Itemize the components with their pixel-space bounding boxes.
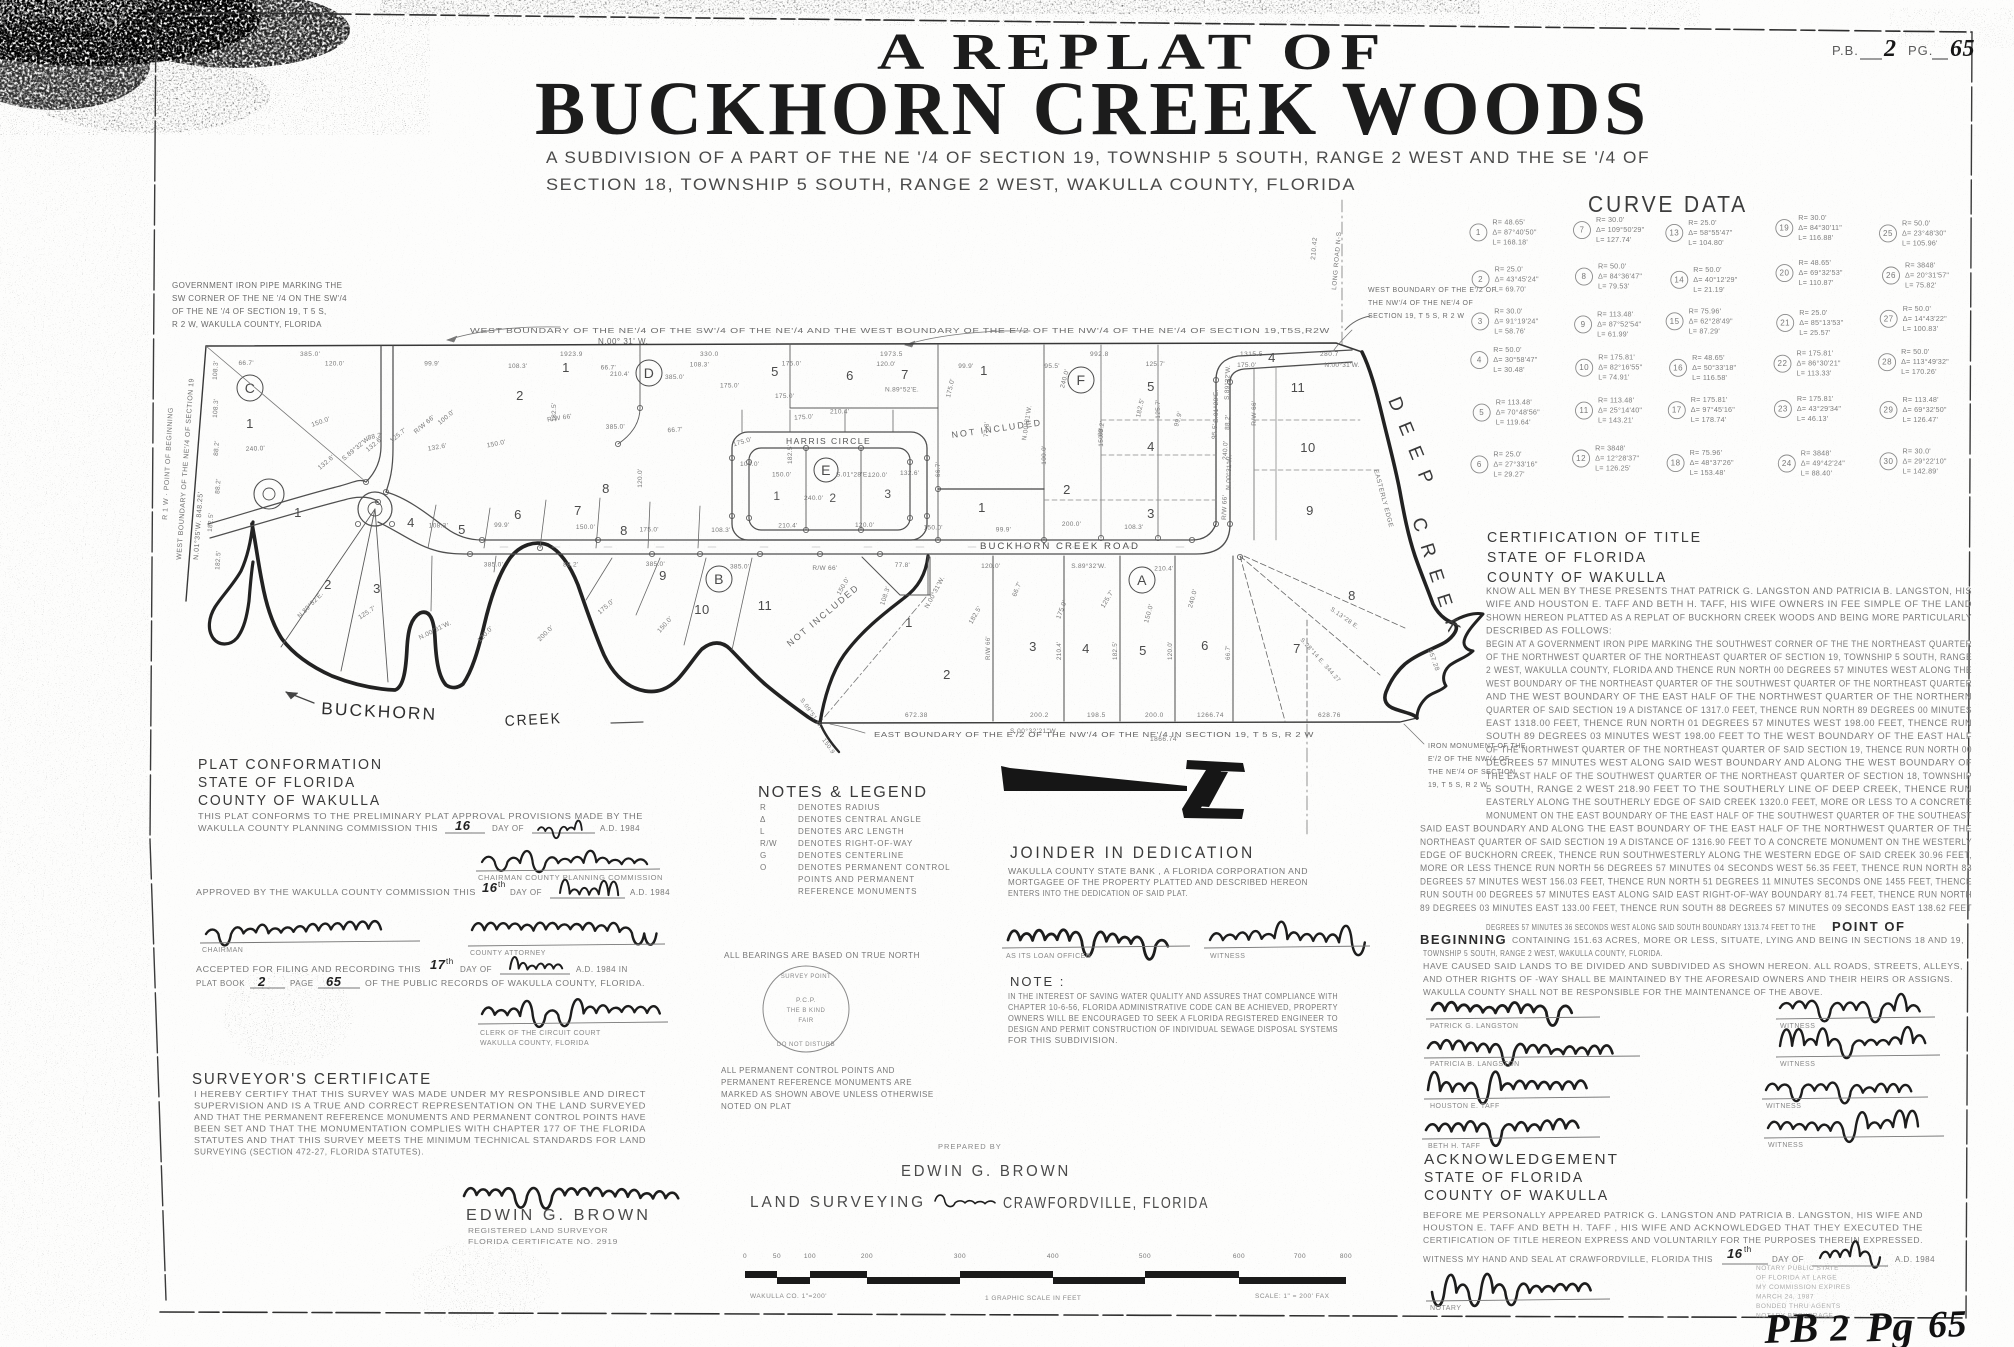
svg-text:7: 7 — [901, 367, 909, 382]
svg-text:99.9': 99.9' — [958, 363, 973, 370]
svg-text:Δ= 87°40'50": Δ= 87°40'50" — [1492, 227, 1536, 236]
svg-text:3: 3 — [884, 487, 891, 501]
svg-text:100.0': 100.0' — [740, 461, 759, 468]
svg-text:R= 48.65': R= 48.65' — [1492, 217, 1525, 226]
svg-text:CLERK OF THE CIRCUIT COURT: CLERK OF THE CIRCUIT COURT — [480, 1030, 601, 1037]
svg-text:DEGREES 57 MINUTES 36 SECONDS: DEGREES 57 MINUTES 36 SECONDS WEST ALONG… — [1486, 923, 1816, 932]
svg-text:88.2': 88.2' — [213, 440, 221, 456]
svg-text:15: 15 — [1670, 317, 1680, 326]
svg-text:88.2': 88.2' — [1224, 414, 1232, 430]
svg-text:16: 16 — [482, 880, 498, 895]
svg-text:L= 113.33': L= 113.33' — [1797, 369, 1832, 378]
svg-text:Δ= 43°45'24": Δ= 43°45'24" — [1495, 274, 1539, 283]
svg-text:0: 0 — [743, 1253, 747, 1260]
svg-text:1866.74': 1866.74' — [1150, 736, 1179, 743]
svg-text:R= 75.96': R= 75.96' — [1689, 306, 1722, 315]
svg-text:WIFE AND HOUSTON E. TAFF AND: WIFE AND HOUSTON E. TAFF AND BETH H. TAF… — [1486, 599, 1972, 609]
svg-text:P.B.: P.B. — [1832, 43, 1859, 58]
svg-text:THE EAST HALF OF THE SOUTHWES: THE EAST HALF OF THE SOUTHWEST QUARTER O… — [1486, 771, 1972, 781]
svg-text:66.7': 66.7' — [239, 360, 254, 367]
svg-text:DENOTES PERMANENT CONTROL: DENOTES PERMANENT CONTROL — [798, 863, 950, 872]
svg-text:R= 50.0': R= 50.0' — [1693, 265, 1722, 274]
svg-text:600: 600 — [1233, 1253, 1245, 1260]
svg-text:CREEK: CREEK — [504, 710, 562, 730]
svg-text:5: 5 — [1479, 408, 1484, 417]
svg-text:DENOTES CENTERLINE: DENOTES CENTERLINE — [798, 851, 904, 860]
svg-text:REFERENCE MONUMENTS: REFERENCE MONUMENTS — [798, 887, 917, 896]
svg-text:CHAPTER 10-6-56, FLORIDA ADMIN: CHAPTER 10-6-56, FLORIDA ADMINISTRATIVE … — [1008, 1003, 1338, 1012]
svg-text:CRAWFORDVILLE, FLORIDA: CRAWFORDVILLE, FLORIDA — [1003, 1195, 1209, 1212]
svg-text:182.5': 182.5' — [787, 445, 794, 464]
svg-text:3: 3 — [1147, 506, 1155, 521]
svg-text:108.3': 108.3' — [1124, 524, 1143, 531]
svg-text:A.D. 1984: A.D. 1984 — [600, 824, 640, 833]
svg-text:R= 25.0': R= 25.0' — [1799, 308, 1828, 317]
svg-text:500: 500 — [1139, 1253, 1151, 1260]
svg-text:R= 113.48': R= 113.48' — [1496, 398, 1533, 407]
svg-text:L= 168.18': L= 168.18' — [1492, 237, 1528, 246]
svg-text:175.0': 175.0' — [794, 413, 814, 421]
svg-text:150.0': 150.0' — [576, 524, 595, 531]
svg-text:1: 1 — [980, 363, 988, 378]
svg-text:HAVE CAUSED SAID LANDS TO BE D: HAVE CAUSED SAID LANDS TO BE DIVIDED AND… — [1423, 962, 1963, 971]
svg-text:240.0': 240.0' — [246, 445, 266, 453]
svg-text:L= 126.47': L= 126.47' — [1903, 415, 1939, 424]
svg-text:CHAIRMAN COUNTY PLANNING COMM: CHAIRMAN COUNTY PLANNING COMMISSION — [478, 875, 663, 882]
svg-text:18: 18 — [1671, 459, 1681, 468]
svg-text:PG.: PG. — [1908, 43, 1933, 58]
svg-text:992.8: 992.8 — [1090, 351, 1109, 358]
svg-text:CERTIFICATION OF TITLE HEREON: CERTIFICATION OF TITLE HEREON EXPRESS AN… — [1423, 1236, 1923, 1245]
svg-text:L= 46.13': L= 46.13' — [1797, 414, 1829, 423]
svg-text:R= 50.0': R= 50.0' — [1493, 345, 1522, 354]
svg-text:24: 24 — [1782, 459, 1792, 468]
svg-text:19: 19 — [1779, 224, 1789, 233]
svg-text:8: 8 — [602, 481, 610, 496]
svg-text:R/W 66': R/W 66' — [1221, 495, 1229, 520]
svg-text:5: 5 — [1147, 379, 1155, 394]
svg-text:L= 29.27': L= 29.27' — [1493, 469, 1525, 478]
svg-text:3: 3 — [1478, 317, 1483, 326]
svg-text:L= 69.70': L= 69.70' — [1495, 284, 1527, 293]
svg-text:WITNESS: WITNESS — [1766, 1103, 1801, 1110]
svg-text:672.38: 672.38 — [905, 712, 928, 719]
svg-text:Δ: Δ — [760, 815, 766, 824]
svg-text:16: 16 — [1673, 363, 1683, 372]
svg-text:66.7': 66.7' — [667, 426, 683, 434]
svg-text:THE NW'/4 OF THE NE'/4 OF: THE NW'/4 OF THE NE'/4 OF — [1368, 300, 1473, 307]
svg-text:EDWIN G. BROWN: EDWIN G. BROWN — [466, 1207, 651, 1224]
svg-text:175.0': 175.0' — [640, 526, 659, 533]
svg-text:R= 50.0': R= 50.0' — [1903, 304, 1932, 313]
svg-text:L= 25.57': L= 25.57' — [1799, 328, 1831, 337]
svg-text:10: 10 — [694, 602, 709, 617]
svg-text:L= 74.91': L= 74.91' — [1598, 373, 1630, 382]
svg-text:I HEREBY CERTIFY THAT THIS SUR: I HEREBY CERTIFY THAT THIS SURVEY WAS MA… — [194, 1090, 646, 1099]
svg-text:6: 6 — [1477, 460, 1482, 469]
svg-text:13: 13 — [1669, 228, 1679, 237]
svg-text:108.3': 108.3' — [508, 363, 527, 370]
svg-text:700: 700 — [1294, 1253, 1306, 1260]
svg-text:27: 27 — [1884, 314, 1894, 323]
svg-text:120.0': 120.0' — [325, 361, 344, 368]
svg-text:CURVE DATA: CURVE DATA — [1588, 191, 1748, 217]
svg-text:4: 4 — [1147, 439, 1155, 454]
svg-text:108.3': 108.3' — [711, 527, 730, 534]
svg-text:QUARTER OF SAID SECTION 19 A D: QUARTER OF SAID SECTION 19 A DISTANCE OF… — [1486, 705, 1972, 715]
svg-text:N.00°31'W.: N.00°31'W. — [1224, 454, 1233, 490]
svg-text:BUCKHORN CREEK WOODS: BUCKHORN CREEK WOODS — [535, 67, 1650, 151]
svg-text:210.4': 210.4' — [610, 371, 629, 378]
svg-text:198.5: 198.5 — [1087, 712, 1106, 719]
svg-text:L= 153.48': L= 153.48' — [1690, 468, 1726, 477]
svg-text:Δ= 27°33'16": Δ= 27°33'16" — [1493, 459, 1537, 468]
svg-text:WITNESS: WITNESS — [1768, 1142, 1803, 1149]
svg-text:100.0': 100.0' — [1041, 445, 1048, 464]
svg-text:P.C.P.: P.C.P. — [796, 997, 816, 1004]
svg-text:175.0': 175.0' — [1237, 362, 1256, 369]
svg-text:95.5': 95.5' — [1211, 423, 1219, 439]
svg-text:FAIR: FAIR — [798, 1018, 814, 1024]
svg-text:95.5': 95.5' — [1044, 363, 1059, 370]
svg-text:E: E — [821, 462, 831, 478]
svg-text:11: 11 — [758, 598, 773, 613]
svg-text:12: 12 — [1576, 454, 1586, 463]
svg-text:Δ= 25°14'40": Δ= 25°14'40" — [1598, 406, 1642, 415]
svg-text:Δ= 58°55'47": Δ= 58°55'47" — [1688, 228, 1732, 237]
svg-text:9: 9 — [1306, 503, 1314, 518]
svg-text:L= 170.26': L= 170.26' — [1901, 367, 1937, 376]
svg-text:R= 30.0': R= 30.0' — [1903, 446, 1932, 455]
svg-text:OF THE NORTHWEST QUARTER OF TH: OF THE NORTHWEST QUARTER OF THE NORTHEAS… — [1486, 744, 1972, 754]
svg-text:150.0': 150.0' — [924, 525, 943, 532]
svg-text:HOUSTON E. TAFF AND BETH H. TA: HOUSTON E. TAFF AND BETH H. TAFF , HIS W… — [1423, 1224, 1923, 1233]
svg-text:PLAT CONFORMATION: PLAT CONFORMATION — [198, 756, 383, 773]
svg-text:200.0': 200.0' — [1062, 521, 1081, 528]
svg-text:REGISTERED LAND SURVEYOR: REGISTERED LAND SURVEYOR — [468, 1226, 608, 1235]
svg-text:2: 2 — [829, 491, 836, 505]
svg-text:Δ= 69°32'53": Δ= 69°32'53" — [1799, 268, 1843, 277]
svg-text:120.0': 120.0' — [855, 522, 874, 529]
svg-text:7: 7 — [574, 503, 582, 518]
svg-text:26: 26 — [1886, 271, 1896, 280]
svg-text:R= 75.96': R= 75.96' — [1690, 448, 1723, 457]
svg-text:THIS PLAT CONFORMS TO THE PREL: THIS PLAT CONFORMS TO THE PRELIMINARY PL… — [198, 812, 643, 821]
svg-text:STATE OF FLORIDA: STATE OF FLORIDA — [1487, 549, 1647, 566]
svg-text:R= 30.0': R= 30.0' — [1494, 306, 1523, 315]
svg-text:STATUTES AND THAT THIS SURVEY: STATUTES AND THAT THIS SURVEY MEETS THE … — [194, 1136, 646, 1145]
svg-text:IN THE INTEREST OF SAVING WATE: IN THE INTEREST OF SAVING WATER QUALITY … — [1008, 992, 1338, 1001]
svg-text:OWNERS WILL BE ENCOURAGED TO S: OWNERS WILL BE ENCOURAGED TO SEEK A FLOR… — [1008, 1014, 1338, 1023]
svg-text:R= 30.0': R= 30.0' — [1596, 215, 1625, 224]
svg-text:Δ= 91°19'24": Δ= 91°19'24" — [1494, 316, 1538, 325]
svg-text:182.5': 182.5' — [1112, 642, 1119, 660]
svg-text:R/W 66': R/W 66' — [1251, 401, 1258, 426]
svg-text:NOTES & LEGEND: NOTES & LEGEND — [758, 784, 928, 801]
svg-text:DAY OF: DAY OF — [492, 824, 524, 833]
svg-text:WITNESS: WITNESS — [1780, 1061, 1815, 1068]
svg-text:R= 50.0': R= 50.0' — [1901, 347, 1930, 356]
svg-text:G: G — [760, 851, 767, 860]
svg-text:DENOTES RIGHT-OF-WAY: DENOTES RIGHT-OF-WAY — [798, 839, 913, 848]
svg-text:Δ= 40°12'29": Δ= 40°12'29" — [1693, 275, 1737, 284]
svg-text:R/W: R/W — [760, 839, 777, 848]
svg-text:L= 105.96': L= 105.96' — [1902, 238, 1938, 247]
svg-text:HARRIS CIRCLE: HARRIS CIRCLE — [786, 436, 871, 446]
svg-text:MORE OR LESS THENCE RUN NORTH: MORE OR LESS THENCE RUN NORTH 56 DEGREES… — [1420, 863, 1972, 873]
svg-text:22: 22 — [1778, 359, 1788, 368]
svg-text:Δ= 12°28'37": Δ= 12°28'37" — [1595, 454, 1639, 463]
svg-text:Δ= 70°48'56": Δ= 70°48'56" — [1496, 408, 1540, 417]
svg-text:KNOW ALL MEN BY THESE PRESENTS: KNOW ALL MEN BY THESE PRESENTS THAT PATR… — [1486, 586, 1972, 596]
svg-text:R/W 66': R/W 66' — [985, 636, 992, 660]
svg-text:DAY OF: DAY OF — [510, 888, 542, 897]
svg-text:200.0: 200.0 — [1145, 712, 1164, 719]
svg-text:1923.9: 1923.9 — [560, 351, 583, 358]
svg-text:L= 61.99': L= 61.99' — [1597, 329, 1629, 338]
svg-text:R= 3848': R= 3848' — [1905, 261, 1936, 270]
svg-text:C: C — [245, 380, 256, 396]
svg-text:2: 2 — [1478, 275, 1483, 284]
svg-text:WAKULLA COUNTY, FLORIDA: WAKULLA COUNTY, FLORIDA — [480, 1040, 589, 1047]
svg-text:NOTARY: NOTARY — [1430, 1305, 1462, 1312]
svg-text:R= 25.0': R= 25.0' — [1688, 218, 1717, 227]
svg-text:SUPERVISION AND IS A TRUE AND: SUPERVISION AND IS A TRUE AND CORRECT RE… — [194, 1102, 646, 1111]
svg-text:Δ= 109°50'29": Δ= 109°50'29" — [1596, 225, 1645, 234]
svg-text:COUNTY OF WAKULLA: COUNTY OF WAKULLA — [198, 792, 381, 809]
svg-text:77.8': 77.8' — [895, 562, 910, 569]
svg-text:COUNTY OF WAKULLA: COUNTY OF WAKULLA — [1487, 569, 1667, 586]
svg-text:Δ= 48°37'26": Δ= 48°37'26" — [1690, 458, 1734, 467]
svg-text:Δ= 113°49'32": Δ= 113°49'32" — [1901, 357, 1949, 366]
svg-text:88.2': 88.2' — [563, 561, 578, 568]
svg-text:EASTERLY ALONG THE SOUTHERLY: EASTERLY ALONG THE SOUTHERLY EDGE OF SAI… — [1486, 797, 1972, 807]
svg-text:N.00°31'W.: N.00°31'W. — [1324, 361, 1359, 369]
svg-text:OF THE PUBLIC RECORDS OF WAKUL: OF THE PUBLIC RECORDS OF WAKULLA COUNTY,… — [365, 979, 645, 988]
svg-text:S.89°32'W.: S.89°32'W. — [1071, 562, 1106, 570]
svg-text:1: 1 — [978, 500, 986, 515]
svg-text:R= 175.81': R= 175.81' — [1797, 394, 1834, 403]
svg-text:EAST BOUNDARY OF THE E'/2: EAST BOUNDARY OF THE E'/2 OF THE NW'/4 O… — [874, 730, 1315, 739]
svg-text:25: 25 — [1883, 229, 1893, 238]
svg-text:S.89°32'W.: S.89°32'W. — [1223, 365, 1232, 400]
svg-text:BETH H. TAFF: BETH H. TAFF — [1428, 1143, 1480, 1150]
svg-text:A: A — [1137, 572, 1147, 588]
svg-text:R= 3848': R= 3848' — [1801, 449, 1832, 458]
svg-text:65: 65 — [1950, 36, 1975, 62]
svg-text:30: 30 — [1884, 457, 1894, 466]
svg-text:WEST BOUNDARY OF THE NE'/4 OF: WEST BOUNDARY OF THE NE'/4 OF THE SW'/4 … — [470, 326, 1331, 335]
svg-text:150.0': 150.0' — [772, 471, 791, 478]
svg-text:BEFORE ME PERSONALLY APPEARED: BEFORE ME PERSONALLY APPEARED PATRICK G.… — [1423, 1211, 1923, 1220]
svg-text:300: 300 — [954, 1253, 966, 1260]
svg-text:HOUSTON E. TAFF: HOUSTON E. TAFF — [1430, 1103, 1500, 1110]
svg-text:120.0': 120.0' — [876, 361, 895, 368]
svg-text:ACKNOWLEDGEMENT: ACKNOWLEDGEMENT — [1424, 1151, 1619, 1168]
svg-text:DEGREES 57 MINUTES WEST ALONG: DEGREES 57 MINUTES WEST ALONG SAID WEST … — [1486, 758, 1972, 768]
svg-text:1 GRAPHIC SCALE IN FEET: 1 GRAPHIC SCALE IN FEET — [985, 1295, 1081, 1302]
svg-text:Δ= 84°36'47": Δ= 84°36'47" — [1598, 272, 1642, 281]
svg-text:R: R — [760, 803, 766, 812]
svg-text:NOTE :: NOTE : — [1010, 974, 1065, 989]
svg-text:PB: PB — [1762, 1305, 1819, 1347]
svg-text:11: 11 — [1579, 406, 1588, 415]
svg-text:L= 116.58': L= 116.58' — [1692, 373, 1727, 382]
svg-text:L= 21.19': L= 21.19' — [1693, 285, 1725, 294]
svg-text:628.76: 628.76 — [1318, 712, 1341, 719]
svg-text:DEGREES 57 MINUTES WEST 156.0: DEGREES 57 MINUTES WEST 156.03 FEET, THE… — [1420, 876, 1972, 886]
svg-text:PERMANENT REFERENCE MONUMENTS: PERMANENT REFERENCE MONUMENTS ARE — [721, 1078, 912, 1087]
svg-text:2 WEST, WAKULLA COUNTY, FLORID: 2 WEST, WAKULLA COUNTY, FLORIDA AND THEN… — [1486, 665, 1972, 675]
svg-text:L= 142.89': L= 142.89' — [1903, 466, 1939, 475]
svg-text:11: 11 — [1291, 380, 1306, 395]
svg-text:AND THE WEST BOUNDARY OF THE E: AND THE WEST BOUNDARY OF THE EAST HALF O… — [1486, 692, 1972, 702]
svg-text:120.0': 120.0' — [868, 472, 887, 479]
svg-text:COUNTY OF WAKULLA: COUNTY OF WAKULLA — [1424, 1187, 1609, 1204]
svg-text:DESIGN AND PERMIT CONSTRUCTION: DESIGN AND PERMIT CONSTRUCTION OF INDIVI… — [1008, 1025, 1338, 1034]
svg-text:5: 5 — [771, 364, 779, 379]
svg-text:Δ= 84°30'11": Δ= 84°30'11" — [1798, 223, 1842, 232]
svg-text:EAST 1318.00 FEET, THENCE RUN: EAST 1318.00 FEET, THENCE RUN NORTH 01 D… — [1486, 718, 1972, 728]
svg-text:MARKED AS SHOWN ABOVE UNLESS O: MARKED AS SHOWN ABOVE UNLESS OTHERWISE — [721, 1090, 934, 1099]
svg-text:L= 100.83': L= 100.83' — [1903, 324, 1939, 333]
svg-text:JOINDER IN DEDICATION: JOINDER IN DEDICATION — [1010, 843, 1255, 862]
svg-text:2: 2 — [1063, 482, 1071, 497]
svg-text:Δ= 82°16'55": Δ= 82°16'55" — [1598, 363, 1642, 372]
svg-text:2: 2 — [324, 577, 332, 592]
svg-text:SURVEYING (SECTION 472-27, FLO: SURVEYING (SECTION 472-27, FLORIDA STATU… — [194, 1148, 424, 1157]
svg-text:DENOTES ARC LENGTH: DENOTES ARC LENGTH — [798, 827, 904, 836]
svg-text:Δ= 87°52'54": Δ= 87°52'54" — [1597, 319, 1641, 328]
svg-text:4: 4 — [1082, 641, 1090, 656]
svg-text:R= 113.48': R= 113.48' — [1903, 395, 1940, 404]
svg-text:240.0': 240.0' — [804, 495, 823, 502]
svg-text:6: 6 — [846, 368, 854, 383]
svg-text:210.4': 210.4' — [778, 522, 797, 529]
svg-text:175.0': 175.0' — [720, 382, 739, 389]
svg-text:77.8': 77.8' — [983, 422, 991, 438]
svg-text:SECTION 19, T 5 S, R 2 W: SECTION 19, T 5 S, R 2 W — [1368, 313, 1465, 320]
svg-text:L= 119.64': L= 119.64' — [1496, 418, 1531, 427]
svg-text:29: 29 — [1884, 406, 1894, 415]
svg-text:120.0': 120.0' — [637, 468, 644, 487]
svg-text:Δ= 50°33'18": Δ= 50°33'18" — [1692, 363, 1736, 372]
svg-text:BEGIN AT A GOVERNMENT IRON PIP: BEGIN AT A GOVERNMENT IRON PIPE MARKING … — [1486, 639, 1972, 649]
svg-text:PREPARED BY: PREPARED BY — [938, 1142, 1002, 1151]
svg-text:SW CORNER OF THE NE '/4 ON T: SW CORNER OF THE NE '/4 ON THE SW'/4 — [172, 294, 347, 303]
svg-text:2: 2 — [1828, 1307, 1850, 1347]
svg-text:S.01°28'E.: S.01°28'E. — [836, 470, 870, 478]
svg-text:99.9': 99.9' — [494, 522, 509, 529]
svg-text:17: 17 — [430, 957, 446, 972]
svg-text:125.7': 125.7' — [1155, 399, 1162, 418]
svg-text:9: 9 — [1581, 320, 1586, 329]
svg-text:L: L — [760, 827, 765, 836]
svg-text:Δ= 69°32'50": Δ= 69°32'50" — [1903, 405, 1947, 414]
svg-text:182.5': 182.5' — [214, 550, 222, 570]
svg-text:L= 143.21': L= 143.21' — [1598, 416, 1634, 425]
svg-text:28: 28 — [1882, 358, 1892, 367]
svg-text:2: 2 — [943, 667, 951, 682]
svg-text:GOVERNMENT IRON PIPE MARKIN: GOVERNMENT IRON PIPE MARKING THE — [172, 281, 342, 290]
svg-text:WEST BOUNDARY OF THE E'/2 OF: WEST BOUNDARY OF THE E'/2 OF — [1368, 287, 1496, 294]
svg-text:4: 4 — [1268, 350, 1276, 365]
svg-text:AS ITS LOAN OFFICER: AS ITS LOAN OFFICER — [1006, 953, 1091, 960]
svg-text:EDWIN G. BROWN: EDWIN G. BROWN — [901, 1163, 1071, 1180]
svg-text:NOTED ON PLAT: NOTED ON PLAT — [721, 1102, 791, 1111]
svg-text:AND THAT THE PERMANENT REFEREN: AND THAT THE PERMANENT REFERENCE MONUMEN… — [194, 1113, 646, 1122]
svg-text:BEGINNING: BEGINNING — [1420, 932, 1507, 947]
svg-text:BUCKHORN CREEK ROAD: BUCKHORN CREEK ROAD — [980, 541, 1140, 552]
svg-text:R 2 W, WAKULLA COUNTY, FLORID: R 2 W, WAKULLA COUNTY, FLORIDA — [172, 320, 322, 329]
svg-text:R= 113.48': R= 113.48' — [1597, 309, 1634, 318]
svg-text:385.0': 385.0' — [665, 374, 684, 381]
svg-text:210.4': 210.4' — [830, 408, 849, 415]
svg-text:R= 25.0': R= 25.0' — [1493, 449, 1522, 458]
svg-text:OF THE NE '/4 OF SECTION 19,: OF THE NE '/4 OF SECTION 19, T 5 S, — [172, 307, 327, 316]
svg-text:66.7': 66.7' — [1225, 645, 1232, 660]
svg-text:WAKULLA COUNTY SHALL NOT BE RE: WAKULLA COUNTY SHALL NOT BE RESPONSIBLE … — [1423, 988, 1823, 997]
svg-text:L= 127.74': L= 127.74' — [1596, 235, 1632, 244]
svg-text:1: 1 — [562, 360, 570, 375]
svg-text:SHOWN HEREON PLATTED AS A REPL: SHOWN HEREON PLATTED AS A REPLAT OF BUCK… — [1486, 612, 1972, 622]
svg-text:SURVEYOR'S CERTIFICATE: SURVEYOR'S CERTIFICATE — [192, 1071, 432, 1088]
svg-text:6: 6 — [1201, 638, 1209, 653]
svg-text:POINTS AND PERMANENT: POINTS AND PERMANENT — [798, 875, 915, 884]
svg-text:PATRICK G. LANGSTON: PATRICK G. LANGSTON — [1430, 1023, 1518, 1030]
svg-text:108.3': 108.3' — [212, 398, 220, 418]
svg-text:WAKULLA COUNTY STATE BANK , A: WAKULLA COUNTY STATE BANK , A FLORIDA CO… — [1008, 866, 1308, 876]
svg-text:14: 14 — [1674, 275, 1684, 284]
svg-text:L= 88.40': L= 88.40' — [1801, 469, 1833, 478]
svg-text:R= 50.0': R= 50.0' — [1902, 218, 1931, 227]
svg-text:99.9': 99.9' — [996, 527, 1011, 534]
svg-text:NORTHEAST QUARTER OF SAID SECT: NORTHEAST QUARTER OF SAID SECTION 19 A D… — [1420, 837, 1972, 847]
svg-text:S.01°28'E.: S.01°28'E. — [1212, 389, 1220, 423]
svg-text:Δ= 14°43'22": Δ= 14°43'22" — [1903, 314, 1947, 323]
svg-text:WITNESS MY HAND AND SEAL AT CR: WITNESS MY HAND AND SEAL AT CRAWFORDVILL… — [1423, 1255, 1713, 1264]
svg-text:R= 175.81': R= 175.81' — [1598, 353, 1635, 362]
svg-text:DENOTES CENTRAL ANGLE: DENOTES CENTRAL ANGLE — [798, 815, 922, 824]
svg-text:MORTGAGEE OF THE PROPERTY PLAT: MORTGAGEE OF THE PROPERTY PLATTED AND DE… — [1008, 877, 1308, 887]
svg-text:SECTION 18, TOWNSHIP 5 SOUTH,: SECTION 18, TOWNSHIP 5 SOUTH, RANGE 2 WE… — [546, 175, 1356, 194]
svg-text:Δ= 62°28'49": Δ= 62°28'49" — [1689, 316, 1733, 325]
svg-text:L= 110.87': L= 110.87' — [1799, 278, 1834, 287]
svg-text:210.4': 210.4' — [1056, 642, 1063, 660]
svg-text:1: 1 — [905, 615, 913, 630]
svg-text:th: th — [498, 880, 506, 889]
svg-text:ALL PERMANENT CONTROL POINTS A: ALL PERMANENT CONTROL POINTS AND — [721, 1066, 895, 1075]
svg-text:385.0': 385.0' — [484, 561, 503, 568]
svg-text:N.89°52'E.: N.89°52'E. — [885, 386, 919, 394]
svg-text:7: 7 — [1580, 226, 1585, 235]
svg-text:L= 116.88': L= 116.88' — [1798, 233, 1833, 242]
svg-text:L= 87.29': L= 87.29' — [1689, 326, 1721, 335]
svg-text:OF THE NORTHWEST QUARTER OF TH: OF THE NORTHWEST QUARTER OF THE NORTHEAS… — [1486, 652, 1972, 662]
svg-text:385.0': 385.0' — [606, 423, 625, 430]
svg-text:DENOTES RADIUS: DENOTES RADIUS — [798, 803, 880, 812]
svg-text:108.3': 108.3' — [212, 360, 220, 380]
svg-text:6: 6 — [514, 507, 522, 522]
svg-text:2: 2 — [1883, 36, 1897, 62]
svg-text:1: 1 — [773, 489, 780, 503]
svg-text:R= 48.65': R= 48.65' — [1799, 258, 1832, 267]
svg-text:R= 48.65': R= 48.65' — [1692, 353, 1725, 362]
svg-text:7: 7 — [1293, 641, 1301, 656]
svg-text:Δ= 43°29'34": Δ= 43°29'34" — [1797, 404, 1841, 413]
svg-text:19, T 5 S, R 2 W: 19, T 5 S, R 2 W — [1428, 782, 1488, 789]
svg-text:1: 1 — [294, 505, 302, 520]
